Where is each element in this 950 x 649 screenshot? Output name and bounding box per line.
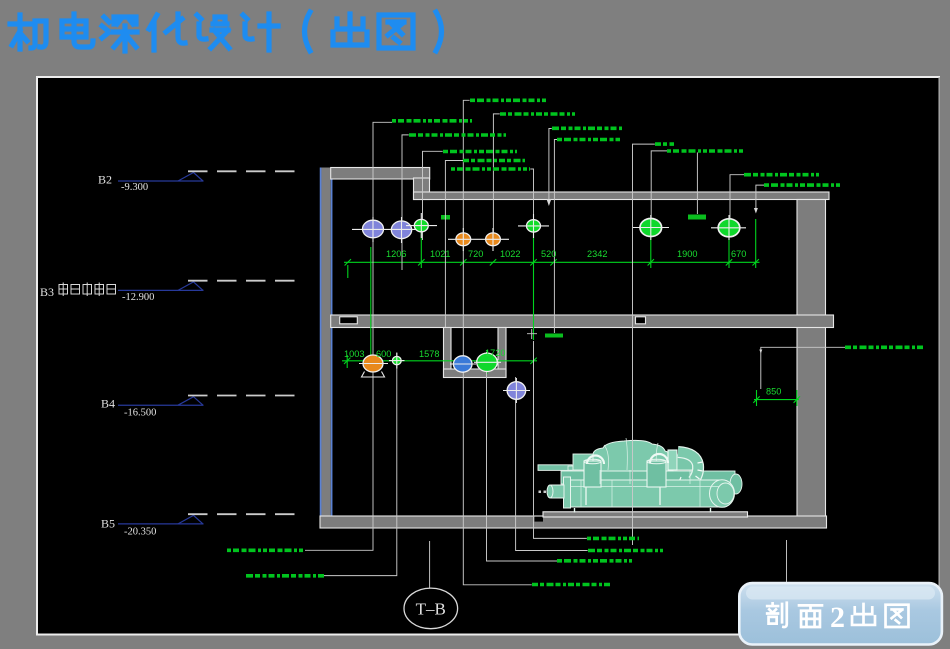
- svg-text:670: 670: [731, 249, 746, 259]
- svg-text:1021: 1021: [430, 249, 450, 259]
- svg-text:-16.500: -16.500: [124, 408, 156, 419]
- svg-text:-9.300: -9.300: [121, 182, 148, 193]
- svg-text:1022: 1022: [500, 249, 520, 259]
- svg-text:720: 720: [468, 249, 483, 259]
- svg-text:1206: 1206: [386, 249, 406, 259]
- svg-text:-20.350: -20.350: [124, 527, 156, 538]
- svg-text:1900: 1900: [677, 249, 697, 259]
- svg-text:520: 520: [541, 249, 556, 259]
- svg-text:2: 2: [830, 601, 845, 634]
- svg-text:1003: 1003: [344, 349, 364, 359]
- svg-text:B2: B2: [98, 173, 112, 187]
- svg-text:600: 600: [376, 349, 391, 359]
- svg-text:1720: 1720: [485, 348, 505, 358]
- svg-text:B4: B4: [101, 397, 115, 411]
- svg-text:B5: B5: [101, 517, 115, 531]
- svg-text:-12.900: -12.900: [122, 292, 154, 303]
- svg-text:T–B: T–B: [416, 600, 446, 619]
- svg-text:1578: 1578: [419, 349, 439, 359]
- svg-text:B3: B3: [40, 285, 54, 299]
- svg-text:2342: 2342: [587, 249, 607, 259]
- svg-text:850: 850: [766, 387, 781, 397]
